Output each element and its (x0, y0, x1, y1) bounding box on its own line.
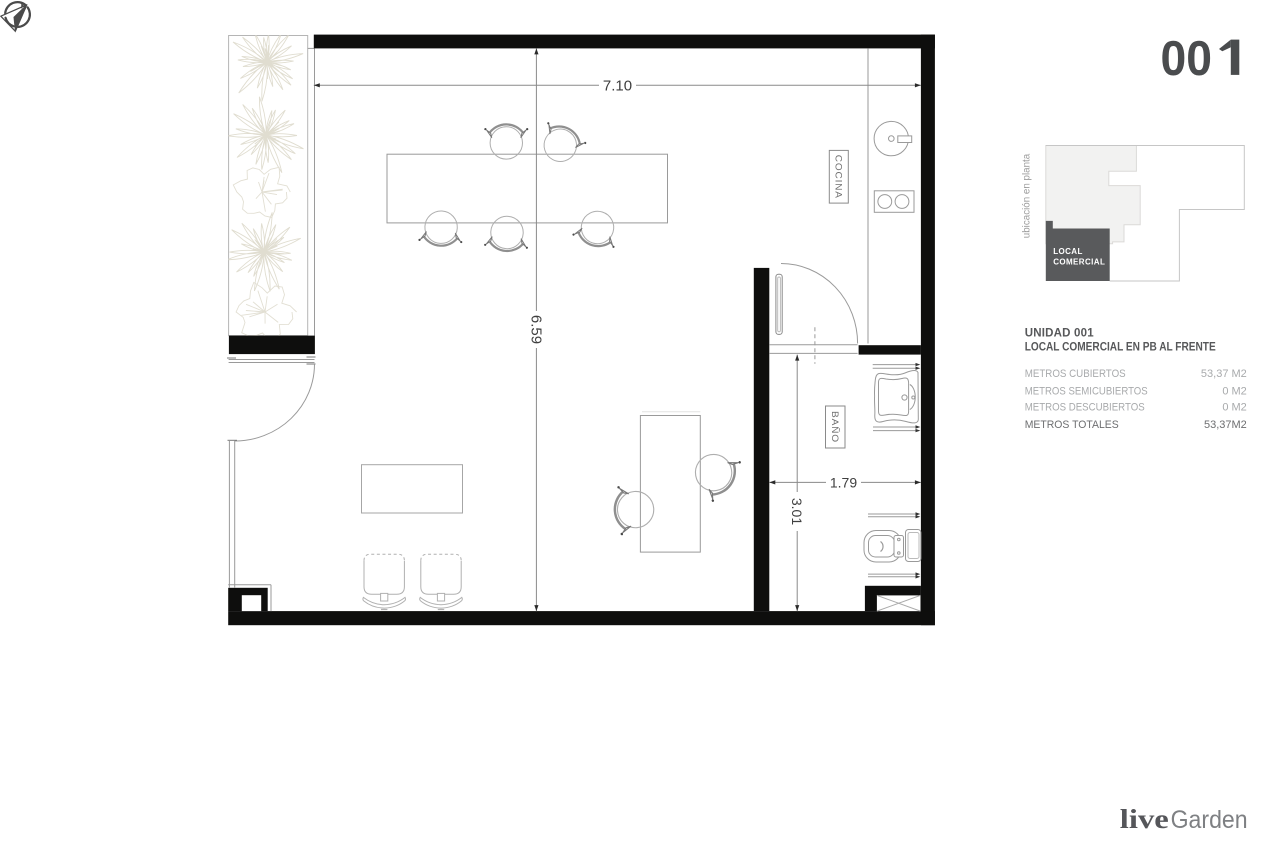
svg-text:live: live (1120, 804, 1169, 834)
svg-text:UNIDAD 001: UNIDAD 001 (1025, 328, 1095, 340)
svg-text:METROS CUBIERTOS: METROS CUBIERTOS (1025, 368, 1126, 380)
svg-text:LOCAL COMERCIAL EN PB AL FRENT: LOCAL COMERCIAL EN PB AL FRENTE (1025, 342, 1216, 354)
svg-text:COCINA: COCINA (832, 155, 843, 199)
svg-text:0 M2: 0 M2 (1222, 385, 1246, 397)
svg-text:METROS TOTALES: METROS TOTALES (1025, 419, 1119, 431)
svg-text:LOCAL: LOCAL (1053, 247, 1083, 256)
svg-text:53,37M2: 53,37M2 (1204, 419, 1247, 431)
svg-text:0 M2: 0 M2 (1222, 402, 1246, 414)
svg-text:BAÑO: BAÑO (829, 411, 840, 443)
svg-text:53,37 M2: 53,37 M2 (1201, 368, 1247, 380)
svg-text:Garden: Garden (1171, 806, 1248, 834)
svg-text:1.79: 1.79 (830, 474, 857, 490)
svg-text:COMERCIAL: COMERCIAL (1053, 257, 1105, 266)
svg-text:METROS SEMICUBIERTOS: METROS SEMICUBIERTOS (1025, 385, 1148, 397)
svg-text:ubicación en planta: ubicación en planta (1022, 153, 1033, 238)
svg-text:7.10: 7.10 (603, 78, 632, 95)
svg-text:METROS DESCUBIERTOS: METROS DESCUBIERTOS (1025, 402, 1145, 414)
svg-text:00: 00 (1161, 32, 1213, 86)
svg-text:6.59: 6.59 (527, 315, 544, 344)
svg-text:3.01: 3.01 (789, 498, 805, 525)
